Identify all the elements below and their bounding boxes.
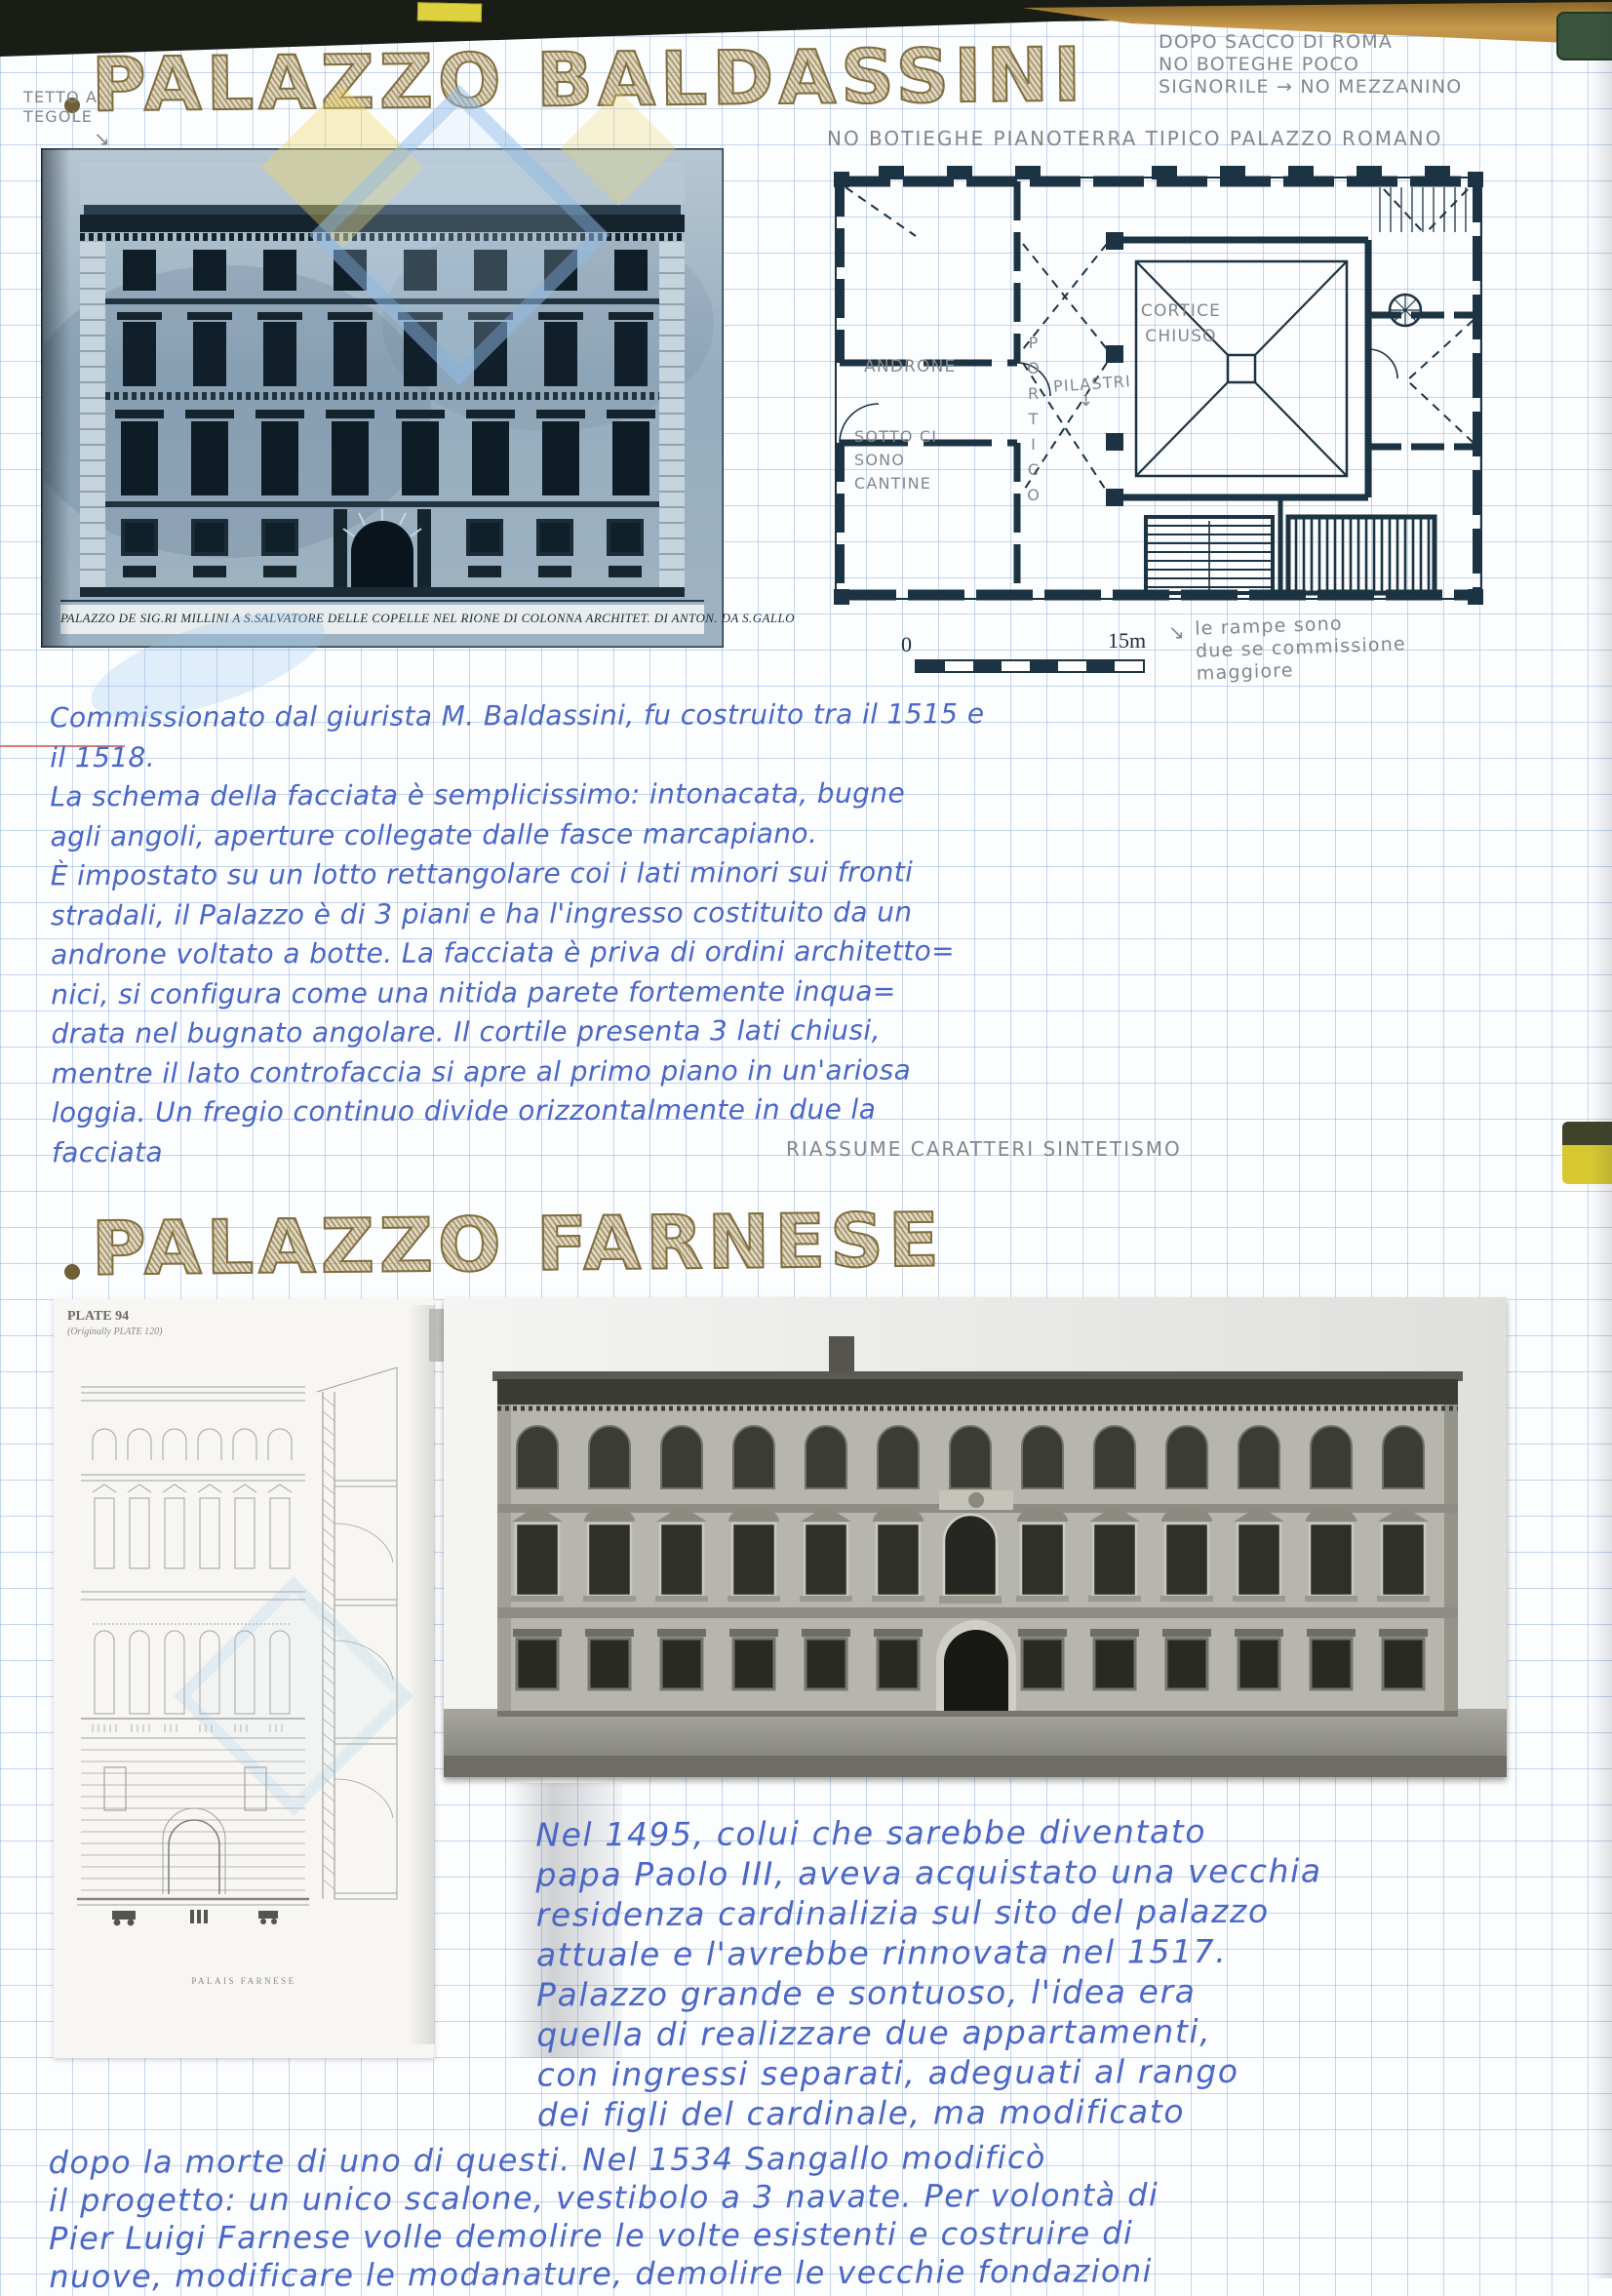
text-line: SOTTO CI (854, 425, 937, 449)
plan-label-androne: ANDRONE (864, 357, 957, 376)
text-line: il 1518. (50, 733, 1093, 777)
baldassini-floor-plan (822, 154, 1495, 642)
ramp-note: le rampe sonodue se commissionemaggiore (1195, 611, 1407, 685)
text-line: dei figli del cardinale, ma modificato (537, 2089, 1532, 2134)
plate-caption: PALAIS FARNESE (83, 1976, 405, 1986)
sticky-tab-yellow (417, 2, 482, 21)
text-line: TETTO A (23, 88, 98, 107)
pencil-note-roof: TETTO ATEGOLE (23, 88, 98, 127)
text-line: Commissionato dal giurista M. Baldassini… (50, 694, 1093, 738)
text-line: È impostato su un lotto rettangolare coi… (51, 852, 1094, 896)
plan-label-cortile: CORTICECHIUSO (1127, 298, 1235, 349)
farnese-photo (444, 1297, 1507, 1777)
scale-end-label: 15m (1108, 628, 1146, 653)
text-line: agli angoli, aperture collegate dalle fa… (50, 812, 1093, 856)
pencil-note-top-right: DOPO SACCO DI ROMANO BOTEGHE POCOSIGNORI… (1159, 31, 1480, 99)
text-line: nici, si configura come una nitida paret… (51, 970, 1094, 1014)
text-line: loggia. Un fregio continuo divide orizzo… (52, 1089, 1095, 1133)
page-edge-shadow (1590, 0, 1612, 2278)
engraving-graphic (41, 148, 724, 648)
text-line: nuove, modificare le modanature, demolir… (49, 2250, 1605, 2296)
text-line: CANTINE (854, 472, 937, 495)
title-bullet-2 (64, 1264, 80, 1280)
farnese-paragraph: Nel 1495, colui che sarebbe diventatopap… (535, 1809, 1532, 2134)
baldassini-paragraph: Commissionato dal giurista M. Baldassini… (50, 694, 1095, 1173)
text-line: quella di realizzare due appartamenti, (536, 2009, 1531, 2054)
farnese-bottom-paragraph: dopo la morte di uno di questi. Nel 1534… (49, 2136, 1606, 2296)
text-line: NO BOTEGHE POCO (1159, 54, 1480, 76)
text-line: residenza cardinalizia sul sito del pala… (536, 1889, 1531, 1934)
roof-note-arrow: ↘ (94, 127, 111, 150)
ramp-note-arrow: ↘ (1168, 620, 1186, 644)
plate-graphic (54, 1299, 434, 2058)
engraving-caption: PALAZZO DE SIG.RI MILLINI A S.SALVATORE … (60, 611, 704, 626)
text-line: mentre il lato controfaccia si apre al p… (52, 1049, 1095, 1093)
farnese-plate-drawing: PLATE 94 (Originally PLATE 120) (54, 1299, 434, 2058)
text-line: SIGNORILE → NO MEZZANINO (1159, 76, 1480, 99)
text-line: papa Paolo III, aveva acquistato una vec… (535, 1849, 1530, 1894)
baldassini-engraving: PALAZZO DE SIG.RI MILLINI A S.SALVATORE … (41, 148, 724, 648)
text-line: con ingressi separati, adeguati al rango (536, 2049, 1531, 2094)
text-line: DOPO SACCO DI ROMA (1159, 31, 1480, 54)
text-line: Palazzo grande e sontuoso, l'idea era (536, 1969, 1531, 2014)
plan-label-pilastri-arrow: ↓ (1079, 390, 1094, 411)
plan-label-cantine: SOTTO CISONOCANTINE (854, 425, 937, 495)
farnese-photo-graphic (444, 1297, 1507, 1777)
section-title-baldassini: PALAZZO BALDASSINI (92, 38, 1086, 123)
plan-label-portico: PORTICO (1024, 334, 1042, 490)
text-line: Nel 1495, colui che sarebbe diventato (535, 1809, 1530, 1854)
text-line: stradali, il Palazzo è di 3 piani e ha l… (51, 891, 1094, 935)
floor-plan-graphic (822, 154, 1495, 642)
text-line: androne voltato a botte. La facciata è p… (51, 931, 1094, 975)
scale-bar (915, 659, 1145, 673)
text-line: attuale e l'avrebbe rinnovata nel 1517. (536, 1929, 1531, 1974)
text-line: CORTICE (1127, 298, 1235, 324)
pencil-note-summary: RIASSUME CARATTERI SINTETISMO (786, 1137, 1182, 1161)
text-line: SONO (854, 449, 937, 472)
text-line: La schema della facciata è semplicissimo… (50, 773, 1093, 817)
section-title-farnese: PALAZZO FARNESE (92, 1203, 945, 1286)
scale-start-label: 0 (901, 632, 912, 657)
plan-header-note: NO BOTIEGHE PIANOTERRA TIPICO PALAZZO RO… (827, 127, 1442, 150)
text-line: CHIUSO (1127, 324, 1235, 349)
text-line: TEGOLE (23, 107, 98, 127)
text-line: drata nel bugnato angolare. Il cortile p… (51, 1010, 1094, 1054)
plate-page-curl (408, 1305, 435, 2044)
notebook-page: { "page": { "titles": { "baldassini": "P… (0, 0, 1612, 2278)
